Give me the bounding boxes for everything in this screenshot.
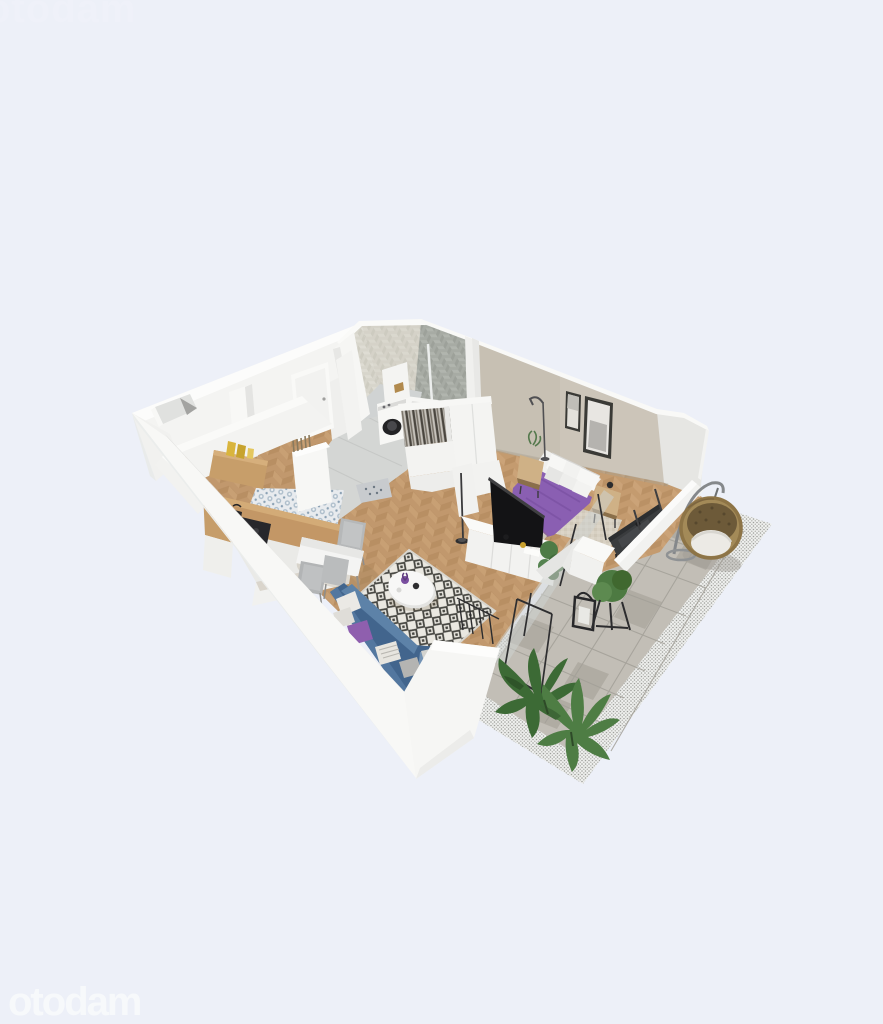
svg-text:otodam: otodam [8, 980, 141, 1024]
svg-text:otodam: otodam [0, 0, 136, 31]
